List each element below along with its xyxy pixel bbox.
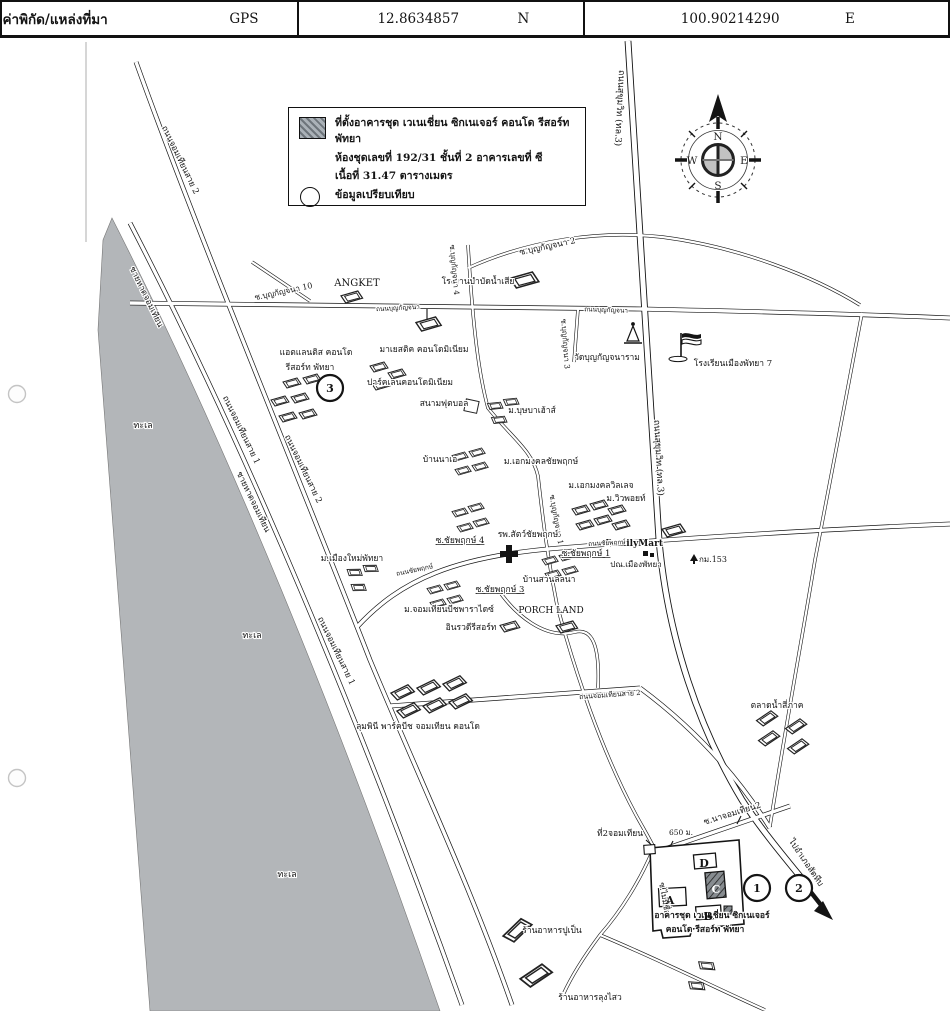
- legend-area-line: เนื้อที่ 31.47 ตารางเมตร: [299, 168, 577, 184]
- map-label: โรงเรียนเมืองพัทยา 7: [694, 358, 772, 369]
- map-detail-lines: [427, 309, 741, 850]
- comparable-marker-number: 2: [795, 882, 803, 895]
- map-label: ร้านอาหารลุงไสว: [558, 992, 622, 1003]
- building-icon: [757, 729, 781, 747]
- building-icon: [469, 448, 485, 457]
- building-icon: [455, 466, 471, 475]
- map-label: ม.เมืองใหม่พัทยา: [321, 553, 383, 564]
- building-icon: [390, 684, 415, 701]
- comparable-marker-number: 3: [326, 382, 334, 395]
- comparable-marker-number: 1: [753, 882, 761, 895]
- building-icon: [576, 520, 594, 530]
- building-icon: [612, 520, 630, 530]
- map-label: ANGKET: [333, 278, 380, 289]
- map-label: ตลาดน้ำสี่ภาค: [751, 699, 804, 711]
- building-icon: [370, 362, 388, 372]
- map-label: ที่2จอมเทียน: [597, 827, 643, 839]
- compass-w-label: W: [687, 155, 698, 167]
- coordinates-title: ค่าพิกัด/แหล่งที่มา: [2, 8, 107, 30]
- hospital-cross-icon: [500, 545, 518, 563]
- map-label: กม.153: [699, 555, 727, 564]
- building-icon: [590, 500, 608, 510]
- building-icon: [283, 378, 301, 388]
- map-label: ทะเล: [242, 631, 261, 641]
- building-icon: [473, 518, 489, 527]
- map-label: ถนนบุญกัญจนา: [584, 305, 628, 315]
- map-label: รพ.สัตว์ชัยพฤกษ์: [498, 529, 559, 540]
- map-label: บ้านสวนลลนา: [523, 574, 576, 585]
- compass-s-label: S: [714, 180, 721, 192]
- building-letter-label: C: [712, 883, 721, 896]
- map-label: ถนนบุญกัญจนา: [376, 303, 421, 313]
- punch-hole-icon: [9, 386, 26, 403]
- building-icon: [279, 412, 297, 422]
- building-icon: [427, 585, 443, 594]
- temple-pagoda-icon: [624, 323, 642, 343]
- map-label: ลุมพินี พาร์คบีช จอมเทียน คอนโด: [356, 721, 480, 732]
- building-icon: [786, 737, 810, 755]
- building-letter-label: B: [703, 910, 712, 923]
- building-icon: [416, 679, 441, 696]
- map-label: ถนนสุขุมวิท (ทล.3): [612, 70, 627, 147]
- building-icon: [444, 581, 460, 590]
- km-marker-icon: [690, 554, 698, 564]
- building-icon: [271, 396, 289, 406]
- building-icon: [608, 505, 626, 515]
- header-cell-longitude: 100.90214290 E: [583, 2, 950, 35]
- map-label: ร้านอาหารปูเป็น: [522, 924, 582, 936]
- building-icon: [447, 595, 463, 604]
- latitude-value: 12.8634857: [377, 11, 459, 27]
- map-label: ซ.บุญกัญจนา 4: [448, 244, 461, 295]
- map-label: รีสอร์ท พัทยา: [285, 362, 334, 373]
- legend-site-line: ที่ตั้งอาคารชุด เวเนเชี่ยน ซิกเนเจอร์ คอ…: [335, 115, 577, 148]
- map-label: ม.บุษบาเฮ้าส์: [508, 405, 556, 416]
- map-label: ซ.บุญกัญจนา 3: [559, 318, 572, 369]
- building-icon: [291, 393, 309, 403]
- map-label: PORCH LAND: [518, 606, 583, 616]
- building-icon: [662, 524, 685, 537]
- map-label: ซ.บุญกัญจนา 2: [519, 236, 577, 258]
- building-icon: [457, 523, 473, 532]
- scanned-map-page: { "header": { "title": "ค่าพิกัด/แหล่งที…: [0, 0, 950, 1011]
- map-label: มาเยสติค คอนโดมิเนียม: [380, 344, 469, 355]
- building-icon: [299, 409, 317, 419]
- building-icon: [341, 291, 363, 303]
- header-cell-latitude: 12.8634857 N: [297, 2, 583, 35]
- building-icon: [452, 508, 468, 517]
- legend-unit-line: ห้องชุดเลขที่ 192/31 ชั้นที่ 2 อาคารเลขท…: [299, 150, 577, 166]
- compass-e-label: E: [740, 155, 748, 167]
- latitude-hemisphere: N: [517, 11, 529, 27]
- map-label: 650 ม.: [669, 828, 693, 837]
- school-flag-icon: [669, 333, 701, 362]
- building-icon: [468, 503, 484, 512]
- map-label: ม.เอกมงคลวิลเลจ: [568, 481, 633, 491]
- compass-n-label: N: [713, 131, 722, 143]
- complex-gate-building: [644, 845, 656, 855]
- map-label: ซ.ชัยพฤกษ์ 4: [436, 535, 485, 546]
- building-icon: [755, 709, 779, 727]
- building-icon: [697, 958, 717, 974]
- map-label: ม.วิวพอยท์: [606, 493, 646, 504]
- punch-hole-icon: [9, 770, 26, 787]
- subject-site-hatch-icon: [299, 117, 326, 139]
- map-label: แอตแลนติส คอนโด: [280, 347, 353, 358]
- building-icon: [350, 581, 368, 594]
- map-label: ทะเล: [277, 870, 296, 880]
- map-label: ปาร์คเลนคอนโดมิเนียม: [367, 377, 453, 388]
- building-icon: [472, 462, 488, 471]
- compass-rose-icon: N E S W: [675, 94, 761, 203]
- building-icon: [562, 566, 578, 575]
- building-icon: [572, 505, 590, 515]
- building-icon: [422, 697, 447, 714]
- map-label: ซ.ชัยพฤกษ์ 3: [476, 584, 525, 595]
- longitude-value: 100.90214290: [681, 11, 780, 27]
- map-label: สนามฟุตบอล: [420, 399, 469, 409]
- legend-compare-line: ข้อมูลเปรียบเทียบ: [335, 187, 577, 207]
- header-cell-source: ค่าพิกัด/แหล่งที่มา GPS: [0, 2, 297, 35]
- building-icon: [594, 515, 612, 525]
- longitude-hemisphere: E: [845, 11, 855, 27]
- map-label: วัดบุญกัญจนาราม: [574, 353, 640, 363]
- map-label: ปณ.เมืองพัทยา: [610, 560, 662, 569]
- map-label: คอนโด รีสอร์ท พัทยา: [666, 924, 745, 935]
- building-icon: [442, 675, 467, 692]
- building-icon: [416, 317, 441, 331]
- building-icon: [500, 621, 520, 632]
- building-letter-label: D: [699, 857, 709, 870]
- building-icon: [518, 962, 554, 989]
- map-label: ซ.ชัยพฤกษ์ 1: [562, 548, 611, 559]
- map-label: บ้านนาเอ: [423, 454, 458, 465]
- coordinates-header-table: ค่าพิกัด/แหล่งที่มา GPS 12.8634857 N 100…: [0, 0, 950, 38]
- map-legend-box: ที่ตั้งอาคารชุด เวเนเชี่ยน ซิกเนเจอร์ คอ…: [288, 107, 586, 206]
- map-label: ทะเล: [133, 421, 152, 431]
- map-label: ม.เอกมงคลชัยพฤกษ์: [504, 456, 579, 467]
- building-icon: [346, 566, 364, 579]
- sea-area: [98, 218, 440, 1011]
- map-label: อินรวดีรีสอร์ท: [446, 622, 497, 633]
- building-icon: [448, 693, 473, 710]
- building-letter-label: A: [665, 894, 675, 907]
- map-label: ม.จอมเทียนบีชพาราไดซ์: [404, 604, 494, 615]
- gps-source-label: GPS: [229, 11, 258, 27]
- post-office-icon: [643, 551, 654, 557]
- building-icon: [542, 556, 558, 565]
- comparable-circle-icon: [300, 187, 320, 207]
